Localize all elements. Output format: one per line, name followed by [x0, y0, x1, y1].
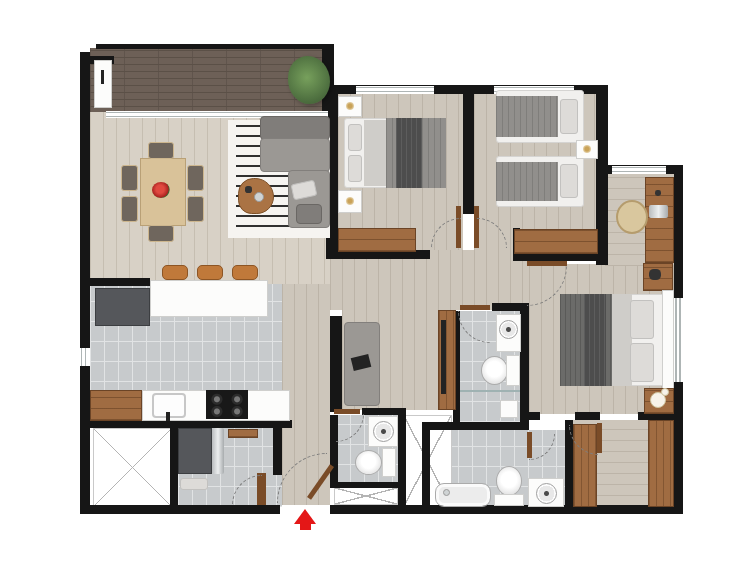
- entrance-arrow-base: [300, 523, 311, 530]
- bath1-door: [460, 305, 490, 310]
- apartment-floor-plan: [0, 0, 748, 566]
- bar-stool-1: [162, 265, 188, 280]
- bath1-shower-tray: [500, 400, 518, 418]
- wall-master-bottom-2: [575, 412, 600, 420]
- coffee-table-tray: [254, 192, 264, 202]
- laundry-shelf: [228, 429, 258, 438]
- wardrobe-right: [648, 420, 674, 507]
- dining-centerpiece: [152, 182, 170, 198]
- desk-decor: [655, 190, 661, 196]
- plant: [288, 56, 330, 104]
- master-pillow-1: [630, 300, 654, 339]
- sofa-throw: [296, 204, 322, 224]
- window-master: [674, 298, 683, 382]
- wall-laundry-right: [273, 420, 282, 475]
- wall-balcony-left: [80, 52, 90, 118]
- bed2b-pillow: [560, 164, 578, 198]
- washer-drum: [212, 428, 224, 474]
- kitchen-faucet: [166, 412, 170, 421]
- bed2-dresser: [514, 229, 598, 254]
- dining-chair-left-1: [121, 165, 138, 191]
- desk-laptop: [649, 205, 668, 218]
- bath1-toilet-bowl: [481, 356, 508, 385]
- tv-screen: [441, 320, 446, 394]
- entrance-arrow: [294, 509, 316, 524]
- wall-bath3-left: [422, 430, 430, 507]
- wall-laundry-left: [170, 428, 178, 507]
- master-sheet: [612, 294, 632, 386]
- bar-stool-3: [232, 265, 258, 280]
- bath2-toilet-tank: [382, 448, 396, 477]
- duct-void-1: [93, 428, 172, 507]
- sofa-seat: [260, 138, 330, 172]
- wall-bath2-bottom: [330, 482, 400, 488]
- bath2-toilet-bowl: [355, 450, 382, 475]
- bed2a-pillow: [560, 99, 578, 134]
- bath1-basin: [499, 320, 518, 339]
- sofa-back: [260, 116, 330, 140]
- bath3-toilet-tank: [494, 494, 524, 506]
- window-bedroom1: [356, 86, 434, 94]
- window-kitchen: [80, 348, 90, 366]
- laundry-mat: [180, 478, 208, 490]
- dining-chair-top: [148, 142, 174, 159]
- dining-chair-bottom: [148, 225, 174, 242]
- master-bed-headboard: [662, 290, 674, 390]
- dining-chair-left-2: [121, 196, 138, 222]
- bed1-blanket-fold: [396, 118, 422, 188]
- bed1-lamp-top: [346, 102, 354, 110]
- corridor-floor: [330, 250, 529, 310]
- dining-chair-right-2: [187, 196, 204, 222]
- master-vanity-decor: [649, 269, 661, 280]
- master-lamp-shade: [661, 388, 669, 396]
- dining-chair-right-1: [187, 165, 204, 191]
- bed1-pillow-1: [348, 124, 362, 151]
- wall-kitchen-stub: [90, 278, 150, 286]
- bath1-shower-glass: [460, 390, 520, 392]
- bed1-sheet: [364, 120, 386, 186]
- washer: [178, 428, 212, 474]
- duct-void-3: [334, 487, 398, 505]
- bed2a-blanket: [496, 96, 558, 137]
- bathtub-faucet: [443, 489, 450, 496]
- stove: [206, 390, 248, 419]
- bath1-toilet-tank: [506, 355, 520, 386]
- wall-nook-left: [330, 316, 342, 412]
- wall-kitchen-bottom: [80, 420, 292, 428]
- coffee-table-decor: [245, 186, 252, 193]
- wall-master-bottom-1: [529, 412, 540, 420]
- master-blanket-fold: [584, 294, 606, 386]
- wall-bottom-right: [330, 505, 683, 514]
- bed2-lamp: [583, 145, 591, 153]
- wall-bath1-bottom: [422, 422, 529, 430]
- wall-bottom-left: [80, 505, 280, 514]
- master-pillow-2: [630, 343, 654, 382]
- balcony-tap-unit: [94, 60, 112, 108]
- wall-bath2-right: [398, 408, 406, 508]
- bath3-basin: [536, 483, 557, 504]
- bath3-toilet-bowl: [496, 466, 522, 496]
- balcony-tap-spout: [101, 70, 104, 84]
- balcony-railing: [96, 44, 324, 49]
- bed1-dresser: [338, 228, 416, 252]
- window-study: [612, 166, 666, 174]
- wall-left-lower: [80, 366, 90, 514]
- bath2-basin: [373, 421, 394, 442]
- fridge: [95, 288, 150, 326]
- wall-left-upper: [80, 112, 90, 350]
- kitchen-island: [150, 280, 268, 317]
- bed1-lamp-bottom: [346, 197, 354, 205]
- bar-stool-2: [197, 265, 223, 280]
- bed2b-blanket: [496, 162, 558, 201]
- bed1-pillow-2: [348, 155, 362, 182]
- kitchen-counter-wood: [90, 390, 142, 421]
- wall-bath1-right: [520, 303, 529, 430]
- wall-bedroom-divider: [463, 94, 474, 214]
- desk-chair: [616, 200, 648, 234]
